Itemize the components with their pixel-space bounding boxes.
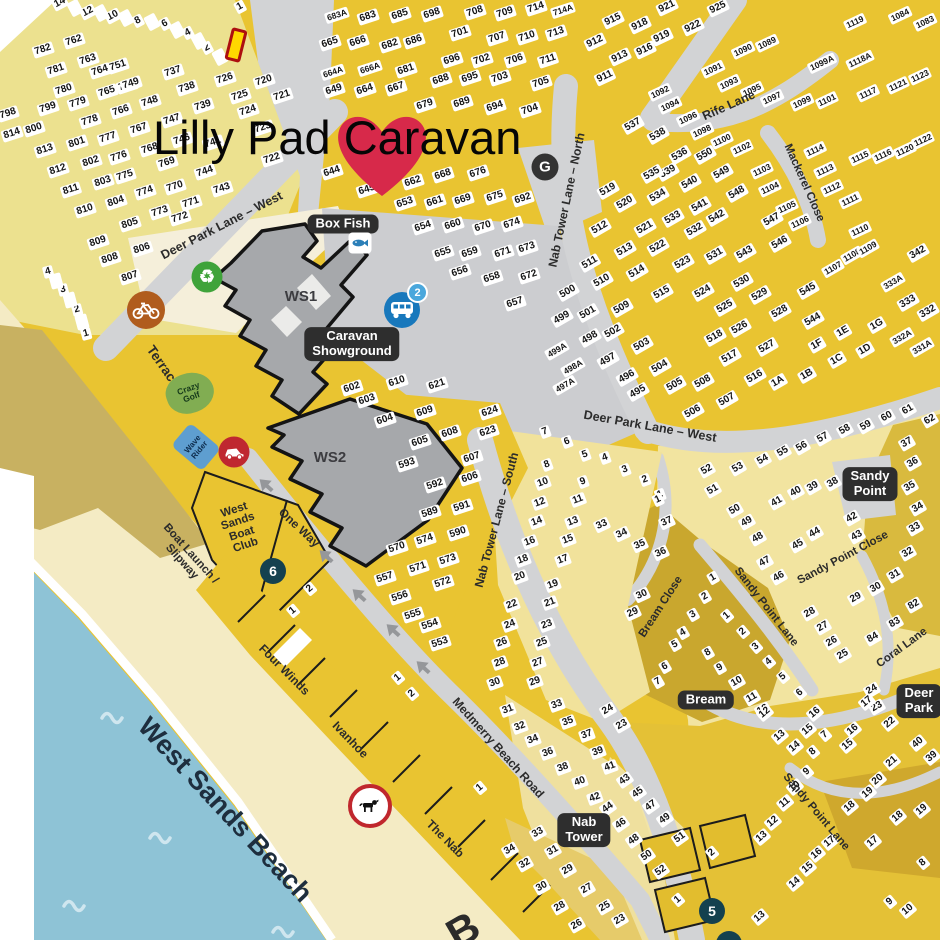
stop-g-label: G: [539, 159, 551, 176]
zone-5-badge: 5: [699, 898, 725, 924]
road-label: WS1: [285, 289, 318, 305]
bicycle-icon: [132, 300, 160, 320]
poi-badge: SandyPoint: [842, 467, 897, 501]
road-label: WS2: [314, 450, 347, 466]
fish-icon: [352, 238, 369, 249]
bus-stop-icon: 2: [384, 292, 420, 328]
zone-6-label: 6: [269, 563, 277, 579]
no-dogs-icon: [348, 784, 392, 828]
zone-6-badge: 6: [260, 558, 286, 584]
zone-5-label: 5: [708, 903, 716, 919]
dog-icon: [359, 798, 381, 814]
box-fish-icon: [349, 233, 372, 254]
cycle-hire-icon: [127, 291, 165, 329]
poi-badge: Bream: [678, 691, 734, 710]
map-title-overlay: Lilly Pad Caravan: [153, 110, 521, 165]
bus-icon: [390, 301, 414, 319]
map-canvas[interactable]: G 2 ♻ Crazy Golf Wave Rider: [0, 0, 940, 940]
stop-g-badge: G: [532, 154, 559, 181]
poi-badge: Box Fish: [308, 215, 379, 234]
buggy-icon: [219, 437, 250, 468]
bus-route-badge: 2: [407, 282, 428, 303]
car-icon: [223, 445, 245, 459]
poi-badge: NabTower: [557, 813, 610, 847]
poi-badge: DeerPark: [897, 684, 940, 718]
poi-badge: CaravanShowground: [304, 327, 399, 361]
recycle-glyph: ♻: [199, 267, 215, 288]
recycling-icon: ♻: [192, 262, 223, 293]
